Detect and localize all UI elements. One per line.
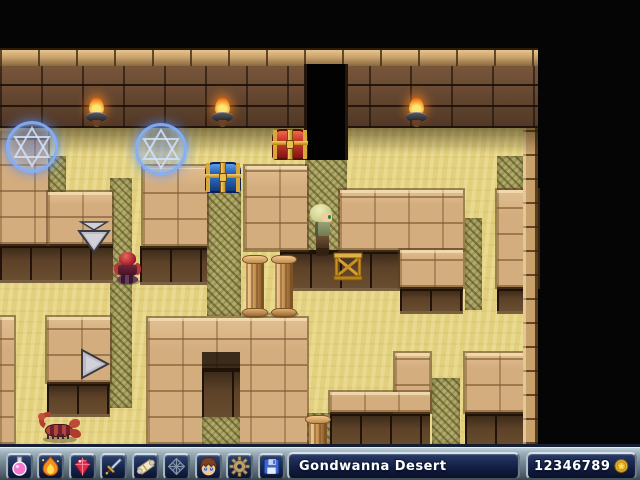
top-dark-wall: [0, 66, 538, 128]
maze-wall: [340, 190, 463, 250]
gear-icon: [229, 456, 250, 477]
maze-wall: [0, 317, 14, 444]
torch-icon: [404, 97, 429, 129]
gem-icon: [72, 456, 93, 477]
bottom-toolbar: Gondwanna Desert 12346789: [0, 444, 640, 480]
torch-icon: [84, 97, 109, 129]
wall-ledge: [400, 287, 463, 314]
map-viewport[interactable]: [0, 0, 640, 444]
maze-wall: [330, 392, 430, 412]
magic-circle: [6, 121, 58, 173]
scroll-icon: [135, 456, 156, 477]
red-chest: [272, 129, 308, 160]
character-status-button[interactable]: [195, 453, 222, 480]
maze-wall: [148, 318, 307, 444]
scroll-quest-button[interactable]: [132, 453, 159, 480]
net-grid-icon: [166, 456, 187, 477]
alcove-floor: [202, 417, 240, 444]
money-value: 12346789: [534, 459, 610, 474]
down-arrow-sign: [77, 221, 111, 254]
blue-chest: [205, 162, 241, 193]
pillar: [271, 255, 297, 317]
gold-coin-icon: [614, 458, 629, 474]
torch-icon: [210, 97, 235, 129]
alcove-ledge: [202, 368, 240, 424]
money-panel: 12346789: [526, 452, 637, 480]
maze-wall: [143, 166, 207, 246]
red-beetle-monster: [114, 251, 141, 285]
maze-wall: [400, 250, 463, 287]
pillar: [305, 415, 331, 444]
save-button[interactable]: [258, 453, 285, 480]
scorpion-monster: [37, 411, 81, 443]
net-grid-button[interactable]: [163, 453, 190, 480]
pillar: [242, 255, 268, 317]
player-character: [307, 204, 336, 256]
gem-button[interactable]: [69, 453, 96, 480]
alcove-shadow: [202, 352, 240, 368]
fire-icon: [40, 456, 61, 477]
wall-shadow: [0, 128, 538, 154]
mottled-sand-patch: [110, 178, 132, 408]
right-arrow-sign: [78, 348, 111, 380]
bench: [332, 250, 364, 283]
magic-circle: [135, 123, 187, 175]
mottled-sand-patch: [207, 190, 241, 316]
potion-item-button[interactable]: [6, 453, 33, 480]
dark-doorway: [304, 64, 348, 160]
sword-icon: [103, 456, 124, 477]
character-portrait-icon: [198, 456, 219, 477]
maze-wall: [245, 166, 307, 250]
maze-wall: [465, 353, 523, 412]
potion-icon: [9, 456, 30, 477]
mottled-sand-patch: [497, 156, 523, 190]
fire-spell-button[interactable]: [37, 453, 64, 480]
sword-equipment-button[interactable]: [100, 453, 127, 480]
wall-ledge: [140, 246, 207, 285]
mottled-sand-patch: [465, 218, 482, 310]
location-panel: Gondwanna Desert: [287, 452, 520, 480]
top-wall-cap: [0, 48, 538, 68]
settings-button[interactable]: [226, 453, 253, 480]
floppy-disk-icon: [261, 456, 282, 477]
mottled-sand-patch: [432, 378, 460, 444]
game-screen: Gondwanna Desert 12346789: [0, 0, 640, 480]
location-label: Gondwanna Desert: [299, 459, 447, 474]
